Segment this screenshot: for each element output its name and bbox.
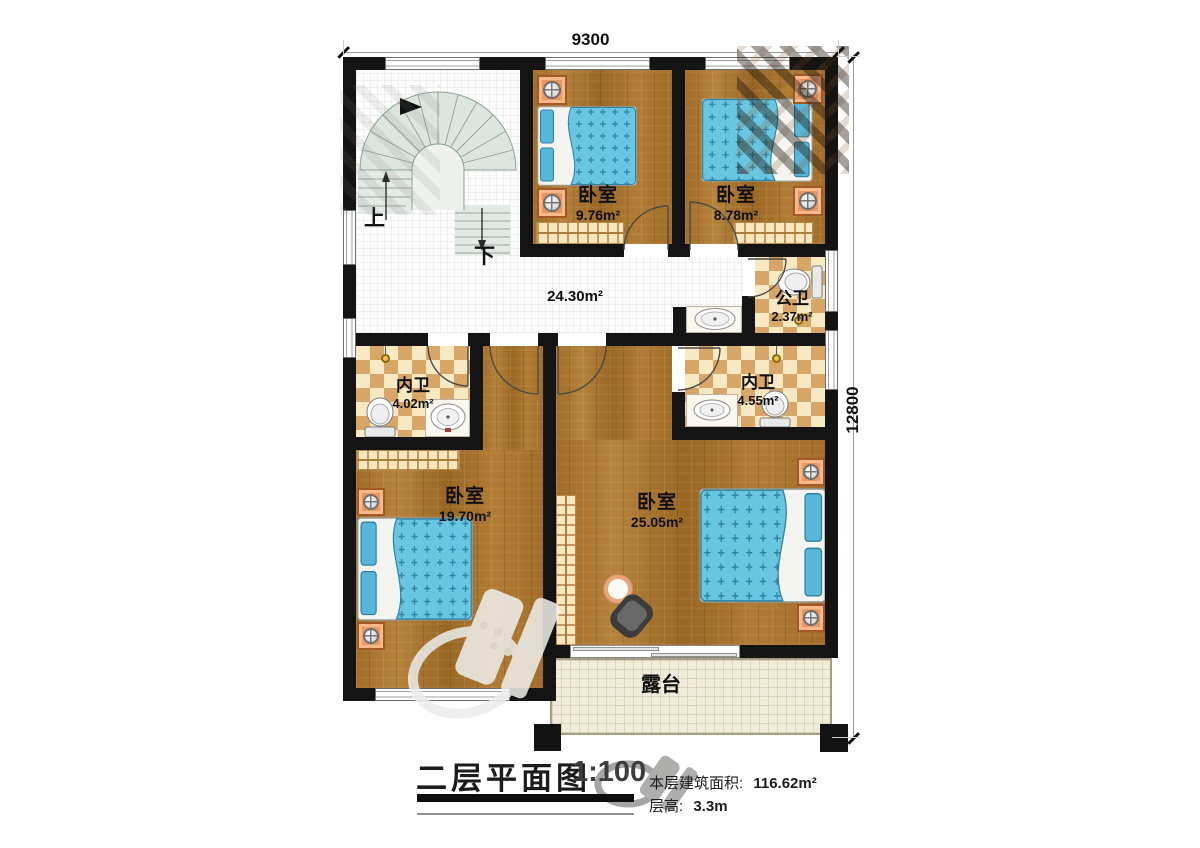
floor-plan-canvas: 上 下: [0, 0, 1200, 848]
room-name: 内卫: [396, 377, 430, 395]
room-name: 公卫: [775, 290, 809, 308]
room-area: 8.78m²: [714, 208, 758, 223]
drawing-scale: 1:100: [572, 756, 646, 789]
extension-line: [832, 737, 860, 738]
floor-height-label: 层高:: [649, 798, 683, 815]
dimension-line-top: [343, 52, 838, 53]
title-underline-thin: [417, 813, 634, 815]
room-label-bedroom-bottom-left: 卧室 19.70m²: [405, 487, 525, 524]
room-name: 卧室: [637, 493, 677, 513]
dimension-width: 9300: [343, 30, 838, 50]
room-label-bedroom-top-left: 卧室 9.76m²: [538, 186, 658, 223]
dimension-height: 12800: [843, 365, 863, 455]
extension-line: [343, 40, 344, 55]
drawing-title: 二层平面图: [416, 753, 591, 798]
room-area: 2.37m²: [771, 310, 812, 324]
room-label-ensuite-left: 内卫 4.02m²: [353, 377, 473, 410]
room-name: 内卫: [741, 374, 775, 392]
extension-line: [838, 40, 839, 55]
room-label-terrace: 露台: [601, 668, 721, 697]
door-arc: [558, 346, 606, 394]
floor-height-value: 3.3m: [693, 798, 727, 815]
room-area: 19.70m²: [439, 509, 491, 524]
title-underline: [417, 794, 634, 802]
room-name: 卧室: [716, 186, 756, 206]
floor-area-label: 本层建筑面积:: [649, 775, 743, 792]
room-area: 9.76m²: [576, 208, 620, 223]
floor-height-note: 层高: 3.3m: [649, 795, 728, 816]
room-label-public-bath: 公卫 2.37m²: [752, 290, 832, 323]
floor-area-note: 本层建筑面积: 116.62m²: [649, 772, 817, 793]
room-area: 4.55m²: [737, 394, 778, 408]
room-label-ensuite-right: 内卫 4.55m²: [698, 374, 818, 407]
room-name: 卧室: [445, 487, 485, 507]
extension-line: [838, 56, 860, 57]
room-label-hallway: 24.30m²: [515, 288, 635, 305]
room-label-bedroom-top-right: 卧室 8.78m²: [676, 186, 796, 223]
room-label-bedroom-bottom-right: 卧室 25.05m²: [597, 493, 717, 530]
door-arc: [490, 346, 538, 394]
room-name: 卧室: [578, 186, 618, 206]
floor-area-value: 116.62m²: [753, 775, 816, 792]
room-area: 4.02m²: [392, 397, 433, 411]
room-area: 25.05m²: [631, 515, 683, 530]
